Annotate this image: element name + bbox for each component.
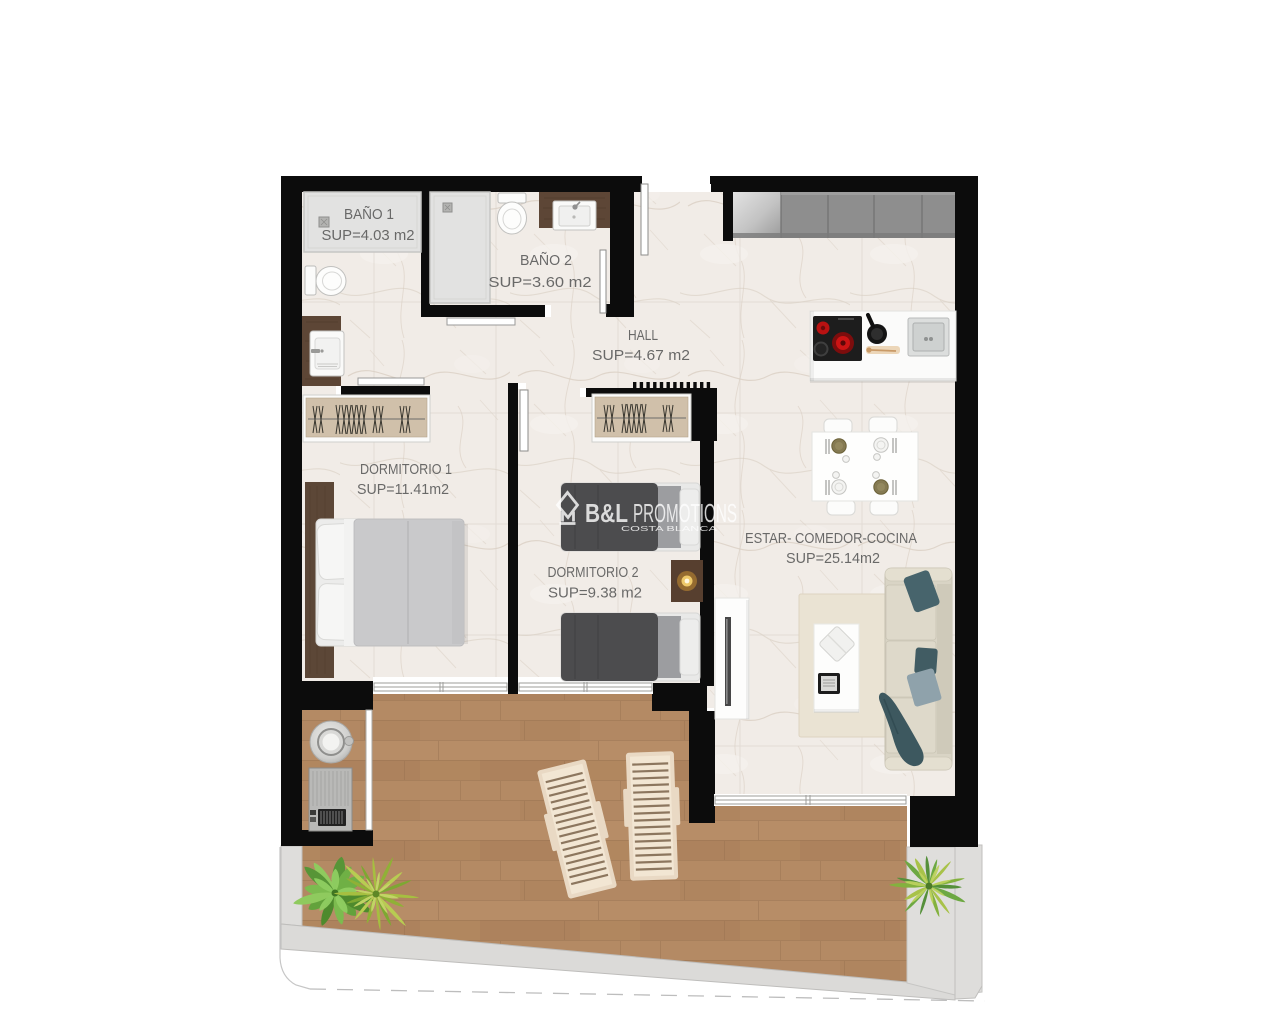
svg-text:SUP=4.03 m2: SUP=4.03 m2 bbox=[322, 227, 415, 244]
svg-text:SUP=4.67 m2: SUP=4.67 m2 bbox=[592, 347, 690, 364]
svg-text:SUP=9.38 m2: SUP=9.38 m2 bbox=[548, 585, 642, 602]
svg-text:SUP=11.41m2: SUP=11.41m2 bbox=[357, 481, 449, 498]
svg-text:DORMITORIO 2: DORMITORIO 2 bbox=[548, 564, 639, 581]
svg-text:DORMITORIO 1: DORMITORIO 1 bbox=[360, 461, 452, 478]
svg-text:ESTAR- COMEDOR-COCINA: ESTAR- COMEDOR-COCINA bbox=[745, 530, 917, 547]
svg-text:BAÑO 1: BAÑO 1 bbox=[344, 206, 394, 223]
svg-text:COSTA BLANCA: COSTA BLANCA bbox=[621, 524, 717, 533]
svg-text:BAÑO 2: BAÑO 2 bbox=[520, 252, 572, 269]
svg-text:HALL: HALL bbox=[628, 327, 658, 344]
svg-text:SUP=25.14m2: SUP=25.14m2 bbox=[786, 550, 880, 567]
svg-text:SUP=3.60 m2: SUP=3.60 m2 bbox=[489, 274, 592, 291]
